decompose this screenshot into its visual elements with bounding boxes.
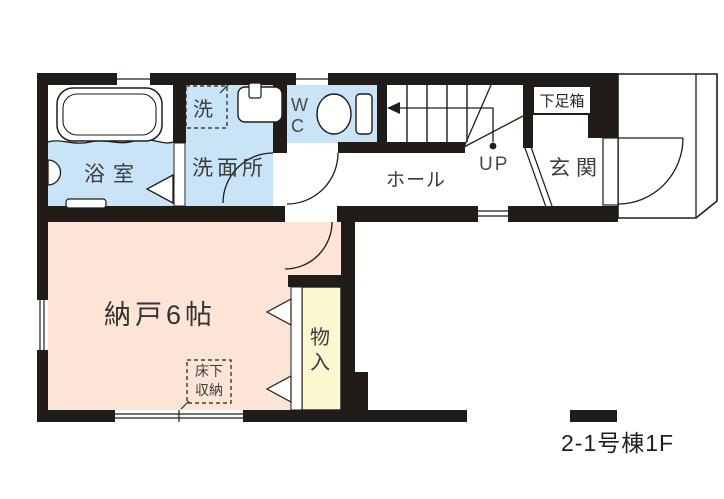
floor-plan: 浴室 洗面所 洗 WC ホール UP 玄関 下足箱 納戸6帖 床下収納 物入 2…	[0, 0, 724, 499]
underfloor-storage-label: 床下収納	[190, 362, 228, 400]
shoebox-label: 下足箱	[539, 90, 584, 111]
wall-mid-center	[337, 206, 478, 222]
entrance-label: 玄関	[549, 157, 603, 180]
wall-bottom	[37, 410, 467, 422]
toilet-label: WC	[291, 95, 311, 137]
entrance-step-line1	[525, 148, 546, 207]
washer-label: 洗	[193, 99, 213, 121]
stairs	[387, 85, 523, 149]
window-hall	[478, 206, 508, 222]
closet-door-panel	[291, 287, 302, 410]
wall-lower-right	[341, 222, 355, 372]
sink-faucet	[249, 83, 261, 98]
hall-label: ホール	[386, 171, 446, 192]
stairs-up-label: UP	[479, 155, 509, 176]
window-left	[37, 300, 48, 350]
closet-label: 物入	[309, 326, 331, 376]
wall-mid-right	[508, 206, 618, 222]
wall-left	[37, 73, 48, 422]
wall-bath-washroom	[173, 85, 186, 143]
bathtub	[57, 88, 162, 141]
bathroom-label: 浴室	[84, 163, 142, 186]
bath-step	[66, 199, 106, 208]
building-caption: 2-1号棟1F	[561, 431, 674, 456]
toilet-fixtures	[317, 94, 372, 134]
wall-right-upper	[588, 73, 618, 138]
porch-outline	[618, 74, 717, 218]
wall-lower-right-corner	[341, 372, 368, 410]
floor-plan-drawing	[0, 0, 724, 499]
wall-stairs-base	[338, 142, 465, 153]
toilet-tank	[356, 94, 372, 134]
stair-winder-line1	[464, 85, 491, 147]
toilet-bowl	[317, 94, 351, 134]
porch	[618, 74, 717, 218]
wall-closet-top	[288, 275, 354, 287]
storage-room-label: 納戸6帖	[104, 301, 216, 331]
shoebox-label-box: 下足箱	[532, 85, 592, 115]
wc-door-arc	[287, 153, 338, 204]
stair-path-dot	[490, 143, 497, 150]
scale-bar	[570, 410, 617, 422]
bath-door-panel	[174, 143, 185, 206]
stair-up-arrow-icon	[387, 102, 400, 114]
front-door-jamb	[603, 138, 618, 205]
washroom-label: 洗面所	[192, 157, 267, 180]
